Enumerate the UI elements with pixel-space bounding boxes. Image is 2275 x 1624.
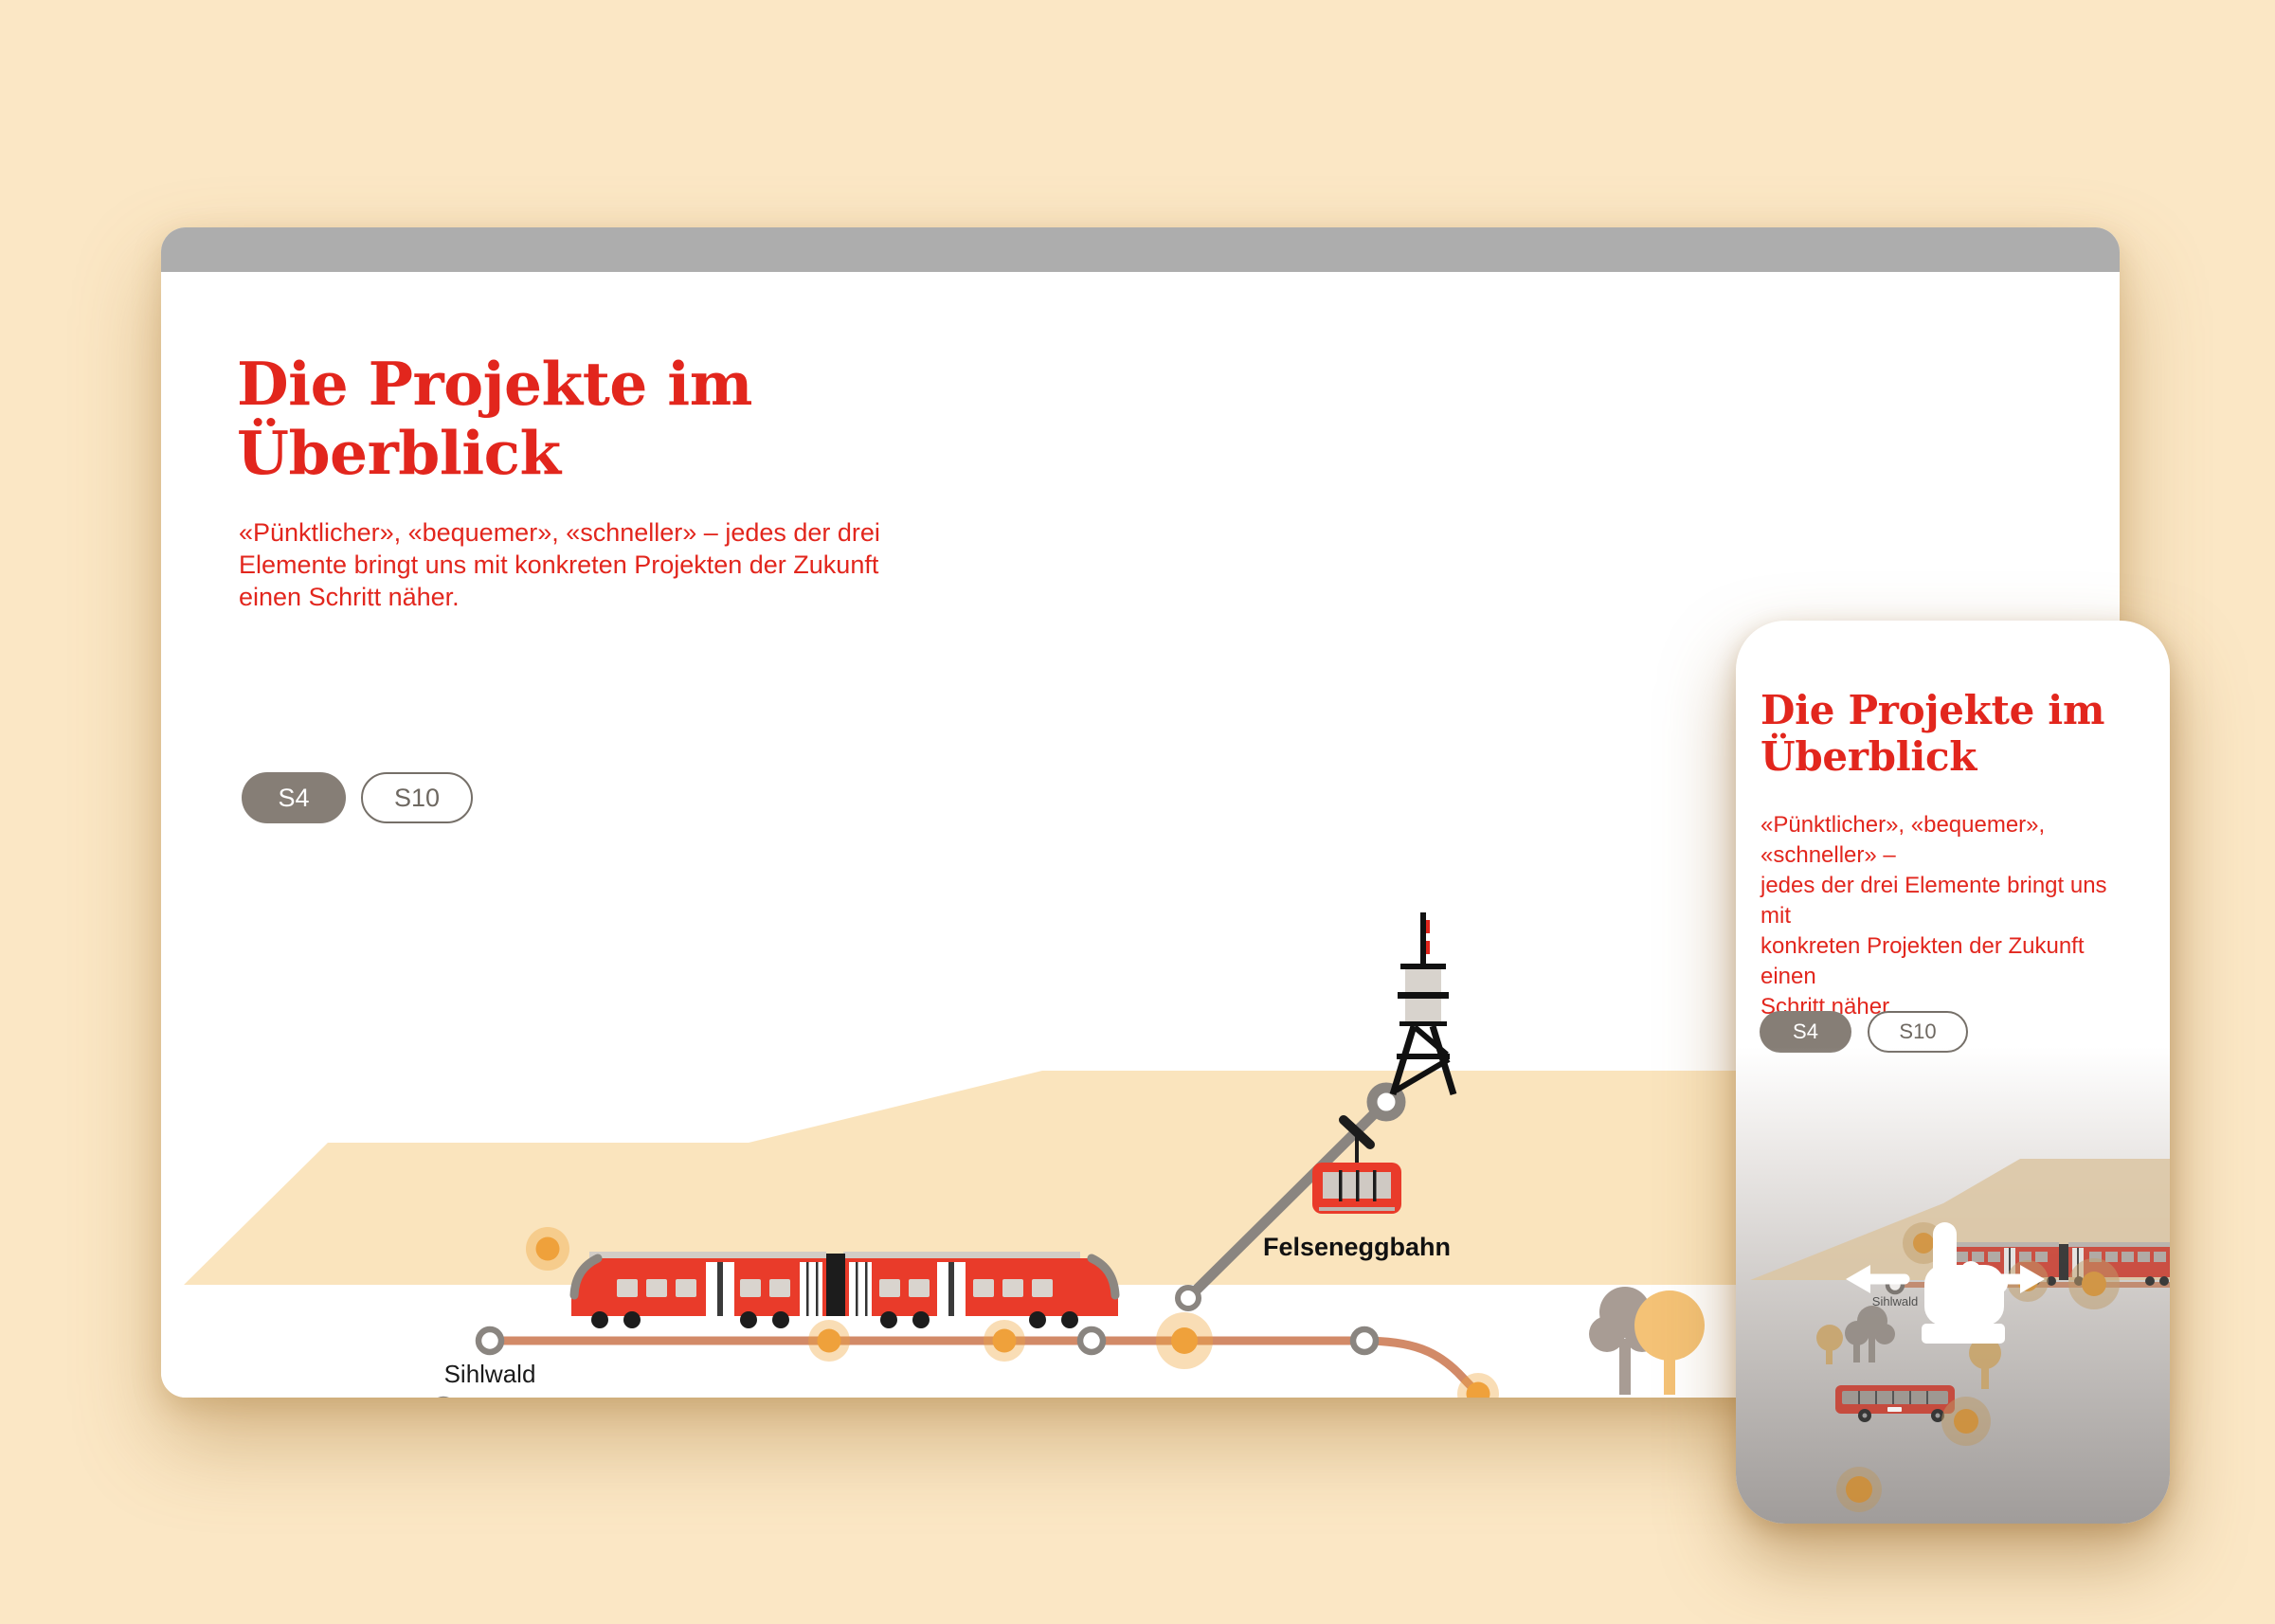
station-label: Sihlwald [444, 1360, 536, 1388]
observation-tower-icon [1393, 912, 1453, 1094]
browser-bar [161, 227, 2120, 272]
phone-intro-text: «Pünktlicher», «bequemer», «schneller» –… [1760, 810, 2140, 1022]
swipe-gesture-hint [1736, 1137, 2170, 1524]
train-icon [571, 1252, 1118, 1328]
station-dot [984, 1320, 1025, 1362]
tap-hand-icon [1922, 1222, 2008, 1344]
station-dot [526, 1227, 569, 1271]
station-dot [808, 1320, 850, 1362]
mobile-mockup: Die Projekte im Überblick «Pünktlicher»,… [1736, 621, 2170, 1524]
swipe-left-arrow-icon [1846, 1265, 1905, 1293]
station-dot [1156, 1312, 1213, 1369]
station-ring [1080, 1329, 1103, 1352]
tree-icons [1589, 1287, 1705, 1395]
page-background: { "desktop": { "title": "Die Projekte im… [0, 0, 2275, 1624]
phone-page-title: Die Projekte im Überblick [1760, 687, 2104, 780]
station-ring [1353, 1329, 1376, 1352]
cablecar-label: Felseneggbahn [1263, 1233, 1451, 1261]
